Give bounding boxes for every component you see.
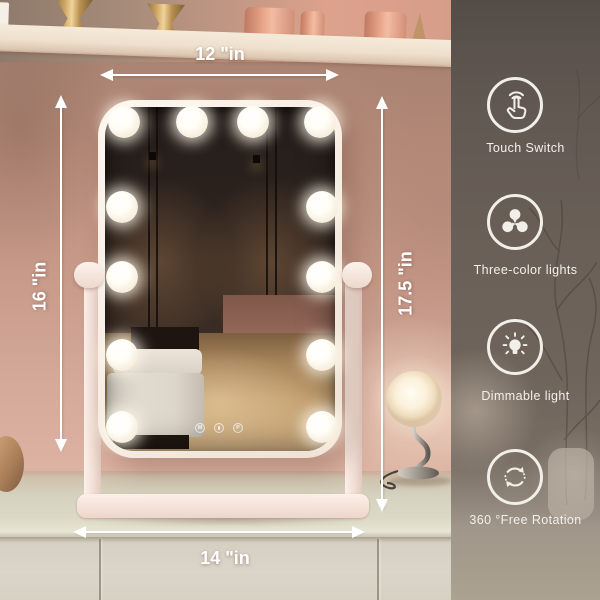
mirror-pivot-knob-left: [74, 262, 104, 288]
feature-label: 360 °Free Rotation: [451, 513, 600, 527]
light-bulb: [306, 261, 338, 293]
touch-switch-icon: [487, 77, 543, 133]
feature-label: Touch Switch: [451, 141, 600, 155]
light-bulb: [237, 106, 269, 138]
width-arrow-top: [102, 74, 337, 76]
width-dimension-top: 12 "in: [150, 44, 290, 65]
mirror-pivot-knob-right: [342, 262, 372, 288]
light-bulb: [306, 411, 338, 443]
height-dimension-left: 16 "in: [30, 225, 51, 349]
width-dimension-bottom: 14 "in: [155, 548, 295, 569]
drawer-seam: [99, 539, 101, 600]
height-arrow-right: [381, 98, 383, 510]
light-bulb: [304, 106, 336, 138]
light-bulb: [306, 339, 338, 371]
glass-vignette: [105, 107, 335, 451]
light-bulb: [106, 261, 138, 293]
mirror-glass: M P: [105, 107, 335, 451]
lamp-cord: [381, 471, 398, 488]
light-bulb: [108, 106, 140, 138]
light-bulb: [106, 339, 138, 371]
width-arrow-bottom: [75, 531, 363, 533]
light-bulb: [306, 191, 338, 223]
light-bulb: [106, 411, 138, 443]
dimmable-light-icon: [487, 319, 543, 375]
mirror-base: [77, 494, 369, 518]
three-color-lights-icon: [487, 194, 543, 250]
product-infographic: M P: [0, 0, 600, 600]
lamp-base: [397, 467, 439, 480]
drawer-seam: [377, 539, 379, 600]
feature-label: Three-color lights: [451, 263, 600, 277]
height-arrow-left: [60, 97, 62, 450]
mirror-stand-post-right: [345, 268, 362, 500]
rotation-icon: [487, 449, 543, 505]
height-dimension-right: 17.5 "in: [396, 214, 417, 354]
light-bulb: [176, 106, 208, 138]
light-bulb: [106, 191, 138, 223]
feature-label: Dimmable light: [451, 389, 600, 403]
